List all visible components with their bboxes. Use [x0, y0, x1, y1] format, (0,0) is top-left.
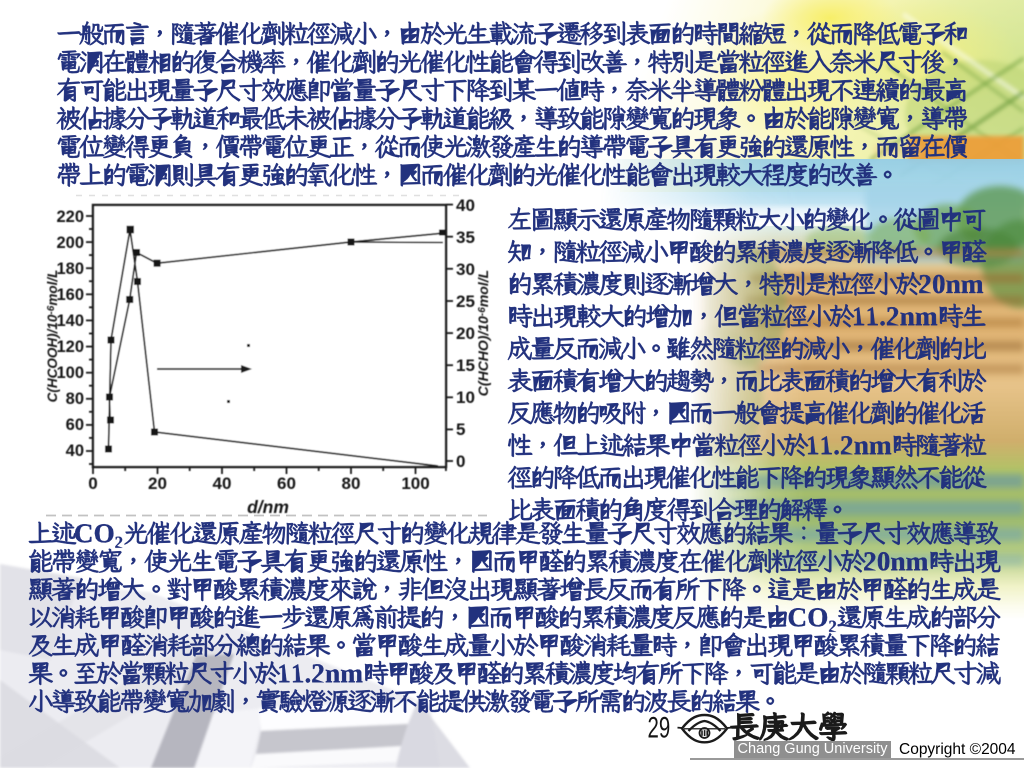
svg-text:40: 40	[213, 474, 232, 493]
svg-text:60: 60	[66, 416, 84, 434]
svg-text:35: 35	[456, 228, 475, 247]
svg-text:0: 0	[88, 474, 97, 493]
svg-text:100: 100	[401, 474, 429, 493]
svg-text:80: 80	[342, 474, 361, 493]
svg-text:25: 25	[456, 292, 475, 311]
svg-text:C(HCOOH)/10-6mol/L: C(HCOOH)/10-6mol/L	[45, 270, 60, 403]
svg-text:60: 60	[277, 474, 296, 493]
svg-text:100: 100	[56, 364, 84, 382]
svg-text:5: 5	[456, 420, 465, 439]
svg-text:220: 220	[56, 208, 84, 226]
svg-text:180: 180	[56, 260, 84, 278]
svg-text:120: 120	[56, 338, 84, 356]
svg-text:20: 20	[456, 324, 475, 343]
svg-text:40: 40	[456, 196, 475, 215]
svg-text:40: 40	[66, 442, 84, 460]
svg-text:200: 200	[56, 234, 84, 252]
svg-text:20: 20	[148, 474, 167, 493]
svg-text:29: 29	[648, 712, 671, 745]
svg-text:140: 140	[56, 312, 84, 330]
svg-text:80: 80	[66, 390, 84, 408]
svg-text:C(HCHO)/10-6mol/L: C(HCHO)/10-6mol/L	[475, 270, 491, 396]
svg-text:160: 160	[56, 286, 84, 304]
svg-text:30: 30	[456, 260, 475, 279]
svg-text:15: 15	[456, 356, 475, 375]
svg-text:10: 10	[456, 388, 475, 407]
svg-text:d/nm: d/nm	[247, 497, 289, 517]
svg-text:0: 0	[456, 452, 465, 471]
